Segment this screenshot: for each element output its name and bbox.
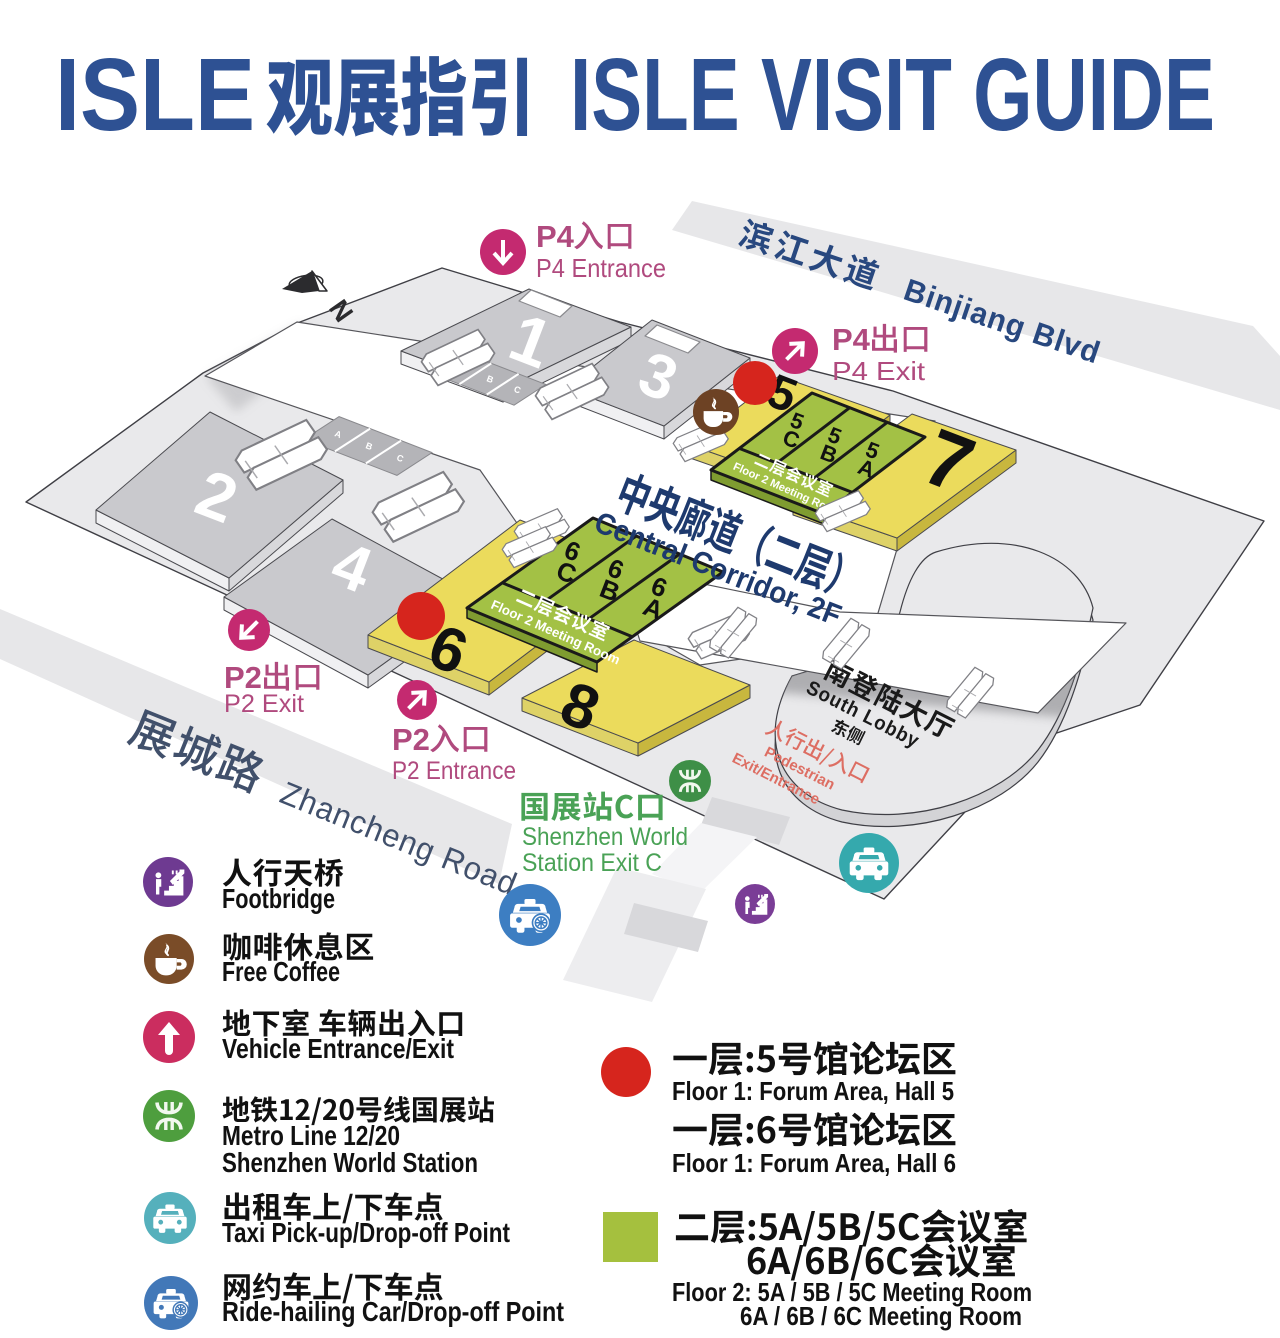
svg-text:ISLE VISIT GUIDE: ISLE VISIT GUIDE bbox=[570, 37, 1215, 152]
svg-text:Taxi Pick-up/Drop-off Point: Taxi Pick-up/Drop-off Point bbox=[222, 1217, 510, 1248]
svg-text:Footbridge: Footbridge bbox=[222, 883, 335, 914]
svg-text:Free Coffee: Free Coffee bbox=[222, 956, 340, 987]
svg-text:Floor 1: Forum Area, Hall 5: Floor 1: Forum Area, Hall 5 bbox=[672, 1076, 954, 1106]
svg-text:P4: P4 bbox=[536, 219, 575, 254]
svg-text:P2 Entrance: P2 Entrance bbox=[392, 757, 516, 785]
svg-text:P2: P2 bbox=[392, 722, 430, 757]
svg-text:ISLE: ISLE bbox=[55, 37, 255, 152]
svg-text:P4 Exit: P4 Exit bbox=[832, 356, 926, 386]
svg-text:Station Exit C: Station Exit C bbox=[522, 849, 662, 877]
svg-text:P2 Exit: P2 Exit bbox=[224, 690, 304, 718]
svg-text:Shenzhen World: Shenzhen World bbox=[522, 823, 688, 851]
svg-text:Ride-hailing Car/Drop-off Poin: Ride-hailing Car/Drop-off Point bbox=[222, 1296, 564, 1327]
svg-text:Floor 1: Forum Area, Hall 6: Floor 1: Forum Area, Hall 6 bbox=[672, 1148, 956, 1178]
svg-text:P4: P4 bbox=[832, 322, 871, 357]
svg-text:P4 Entrance: P4 Entrance bbox=[536, 253, 666, 283]
svg-text:Vehicle Entrance/Exit: Vehicle Entrance/Exit bbox=[222, 1033, 454, 1064]
svg-text:6A / 6B / 6C Meeting Room: 6A / 6B / 6C Meeting Room bbox=[740, 1301, 1022, 1331]
svg-text:Shenzhen World Station: Shenzhen World Station bbox=[222, 1147, 478, 1178]
